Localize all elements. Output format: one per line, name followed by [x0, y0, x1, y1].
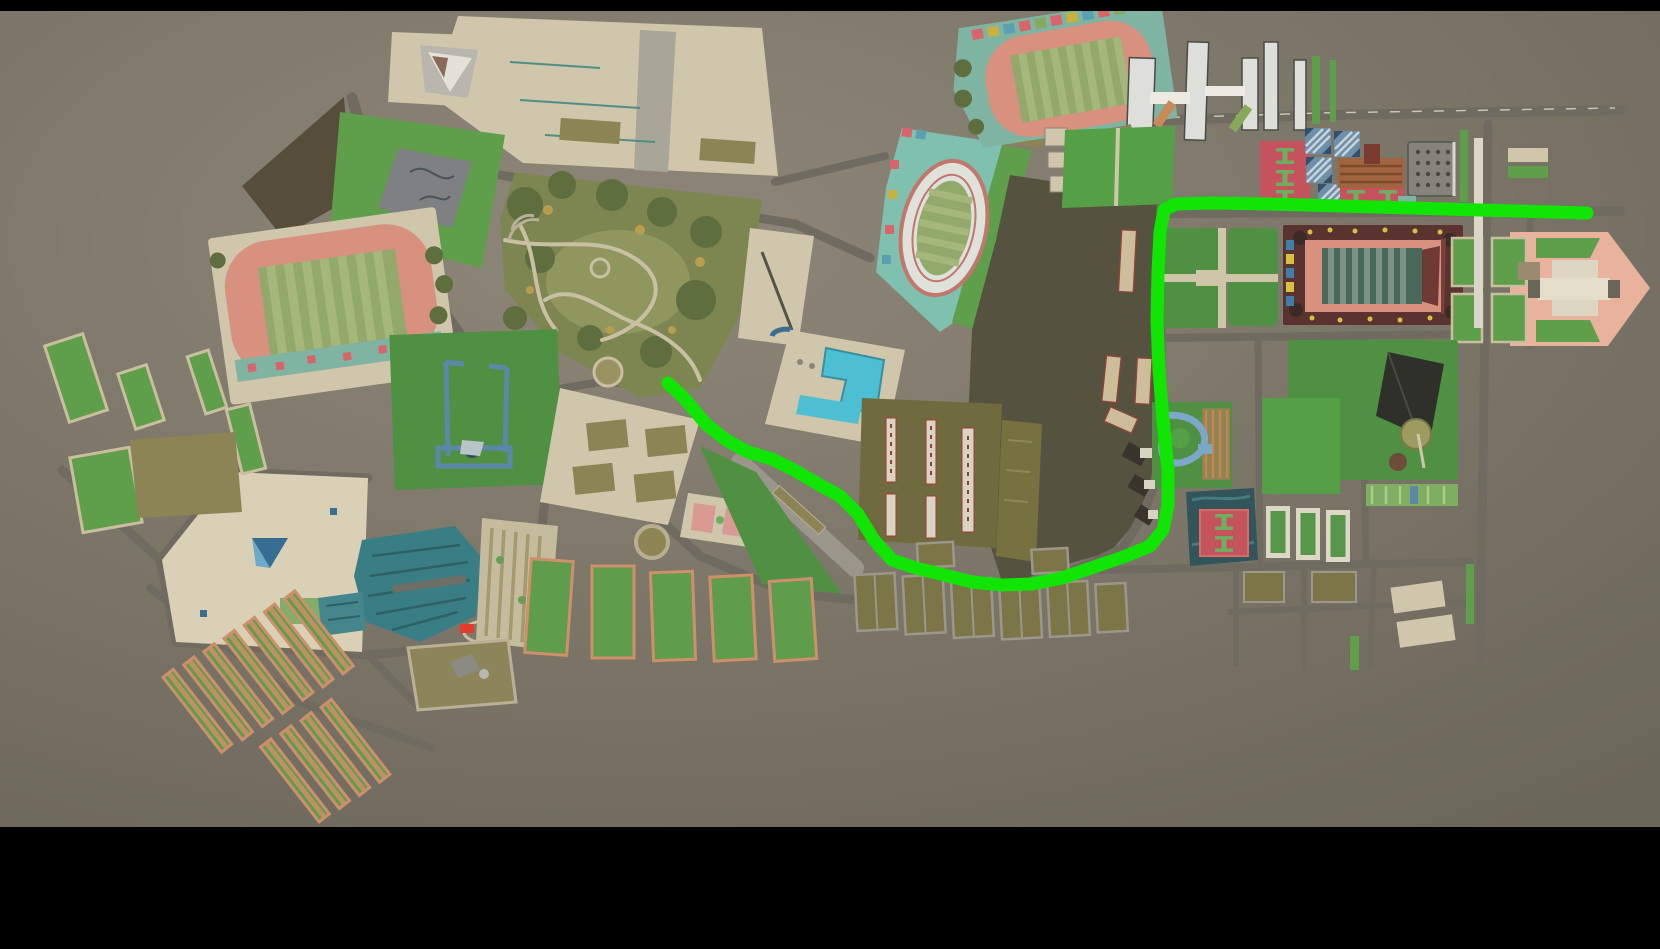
- water-courts-area: [1186, 488, 1258, 566]
- white-path-strip: [1474, 138, 1483, 328]
- map-canvas[interactable]: [0, 0, 1660, 949]
- sky-bridge: [1205, 86, 1245, 96]
- central-stadium-field: [1322, 248, 1422, 304]
- park-dome: [594, 358, 622, 386]
- mid-lawn: [1262, 398, 1340, 494]
- letterbox-bottom: [0, 827, 1660, 949]
- tree-sphere-large: [1401, 419, 1431, 449]
- tree-sphere-small: [1389, 453, 1407, 471]
- gate-frames-lawn: [389, 329, 562, 490]
- white-green-courts: [1266, 506, 1350, 562]
- red-marker: [460, 624, 474, 633]
- olive-field: [130, 432, 242, 518]
- letterbox-top: [0, 0, 1660, 11]
- striped-strip-field: [1366, 484, 1458, 506]
- round-plaza: [636, 526, 668, 558]
- dotted-facade-building: [1408, 142, 1454, 196]
- side-tabs: [1286, 240, 1294, 306]
- red-courts-a: [1260, 141, 1310, 207]
- campus-map-svg: [0, 0, 1660, 949]
- stadium-west-lawns: [1162, 228, 1278, 328]
- kiosk: [1518, 262, 1540, 280]
- central-stadium: [1283, 225, 1463, 325]
- northwest-building: [388, 32, 497, 108]
- greenhouse-block: [858, 398, 1042, 562]
